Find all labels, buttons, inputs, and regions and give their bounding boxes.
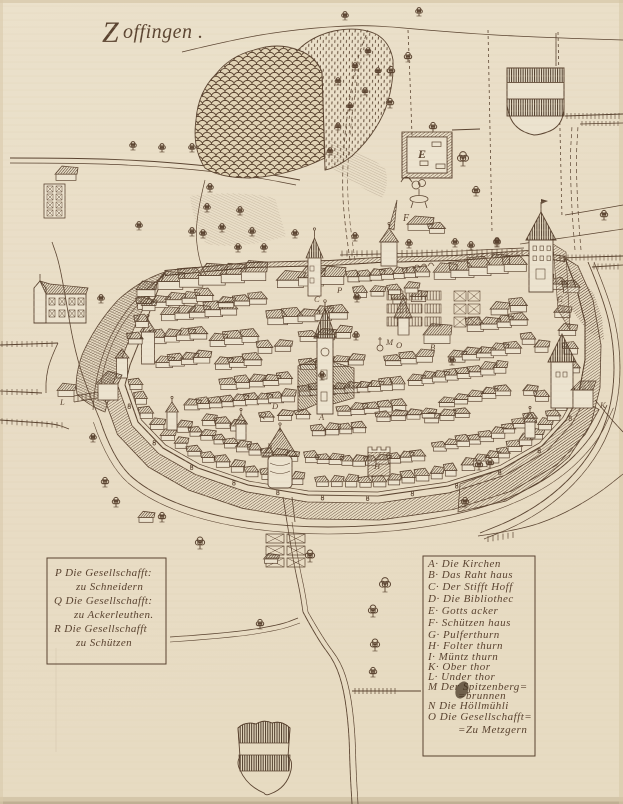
svg-text:E: E — [417, 147, 426, 161]
svg-text:Z: Z — [102, 16, 119, 49]
svg-text:E· Gotts acker: E· Gotts acker — [427, 605, 498, 617]
svg-text:B· Das Raht haus: B· Das Raht haus — [428, 569, 513, 581]
svg-text:C: C — [314, 294, 320, 304]
svg-text:zu Ackerleuthen.: zu Ackerleuthen. — [73, 609, 154, 621]
svg-text:Q: Q — [260, 410, 266, 420]
svg-text:R Die Gesellschafft: R Die Gesellschafft — [53, 623, 148, 635]
svg-text:F· Schützen haus: F· Schützen haus — [427, 617, 511, 629]
svg-text:zu Schützen: zu Schützen — [75, 637, 132, 649]
svg-text:P Die Gesellschafft:: P Die Gesellschafft: — [54, 567, 152, 579]
svg-text:O: O — [396, 340, 402, 350]
svg-text:P: P — [336, 285, 342, 295]
svg-text:offingen .: offingen . — [123, 21, 204, 43]
svg-text:Q Die Gesellschafft:: Q Die Gesellschafft: — [54, 595, 152, 607]
svg-text:L: L — [59, 397, 65, 407]
svg-text:O Die Gesellschafft=: O Die Gesellschafft= — [428, 711, 532, 723]
svg-text:=Zu Metzgern: =Zu Metzgern — [458, 724, 527, 736]
svg-text:F: F — [402, 213, 410, 224]
svg-text:D: D — [271, 401, 279, 411]
svg-text:zu Schneidern: zu Schneidern — [75, 581, 143, 593]
svg-text:c: c — [329, 301, 333, 311]
svg-text:H: H — [373, 461, 381, 471]
svg-text:B: B — [430, 342, 435, 352]
svg-text:G: G — [557, 294, 563, 304]
svg-text:C· Der Stifft Hoff: C· Der Stifft Hoff — [428, 581, 514, 593]
svg-text:A: A — [318, 412, 325, 422]
svg-text:D· Die Bibliothec: D· Die Bibliothec — [427, 593, 514, 605]
